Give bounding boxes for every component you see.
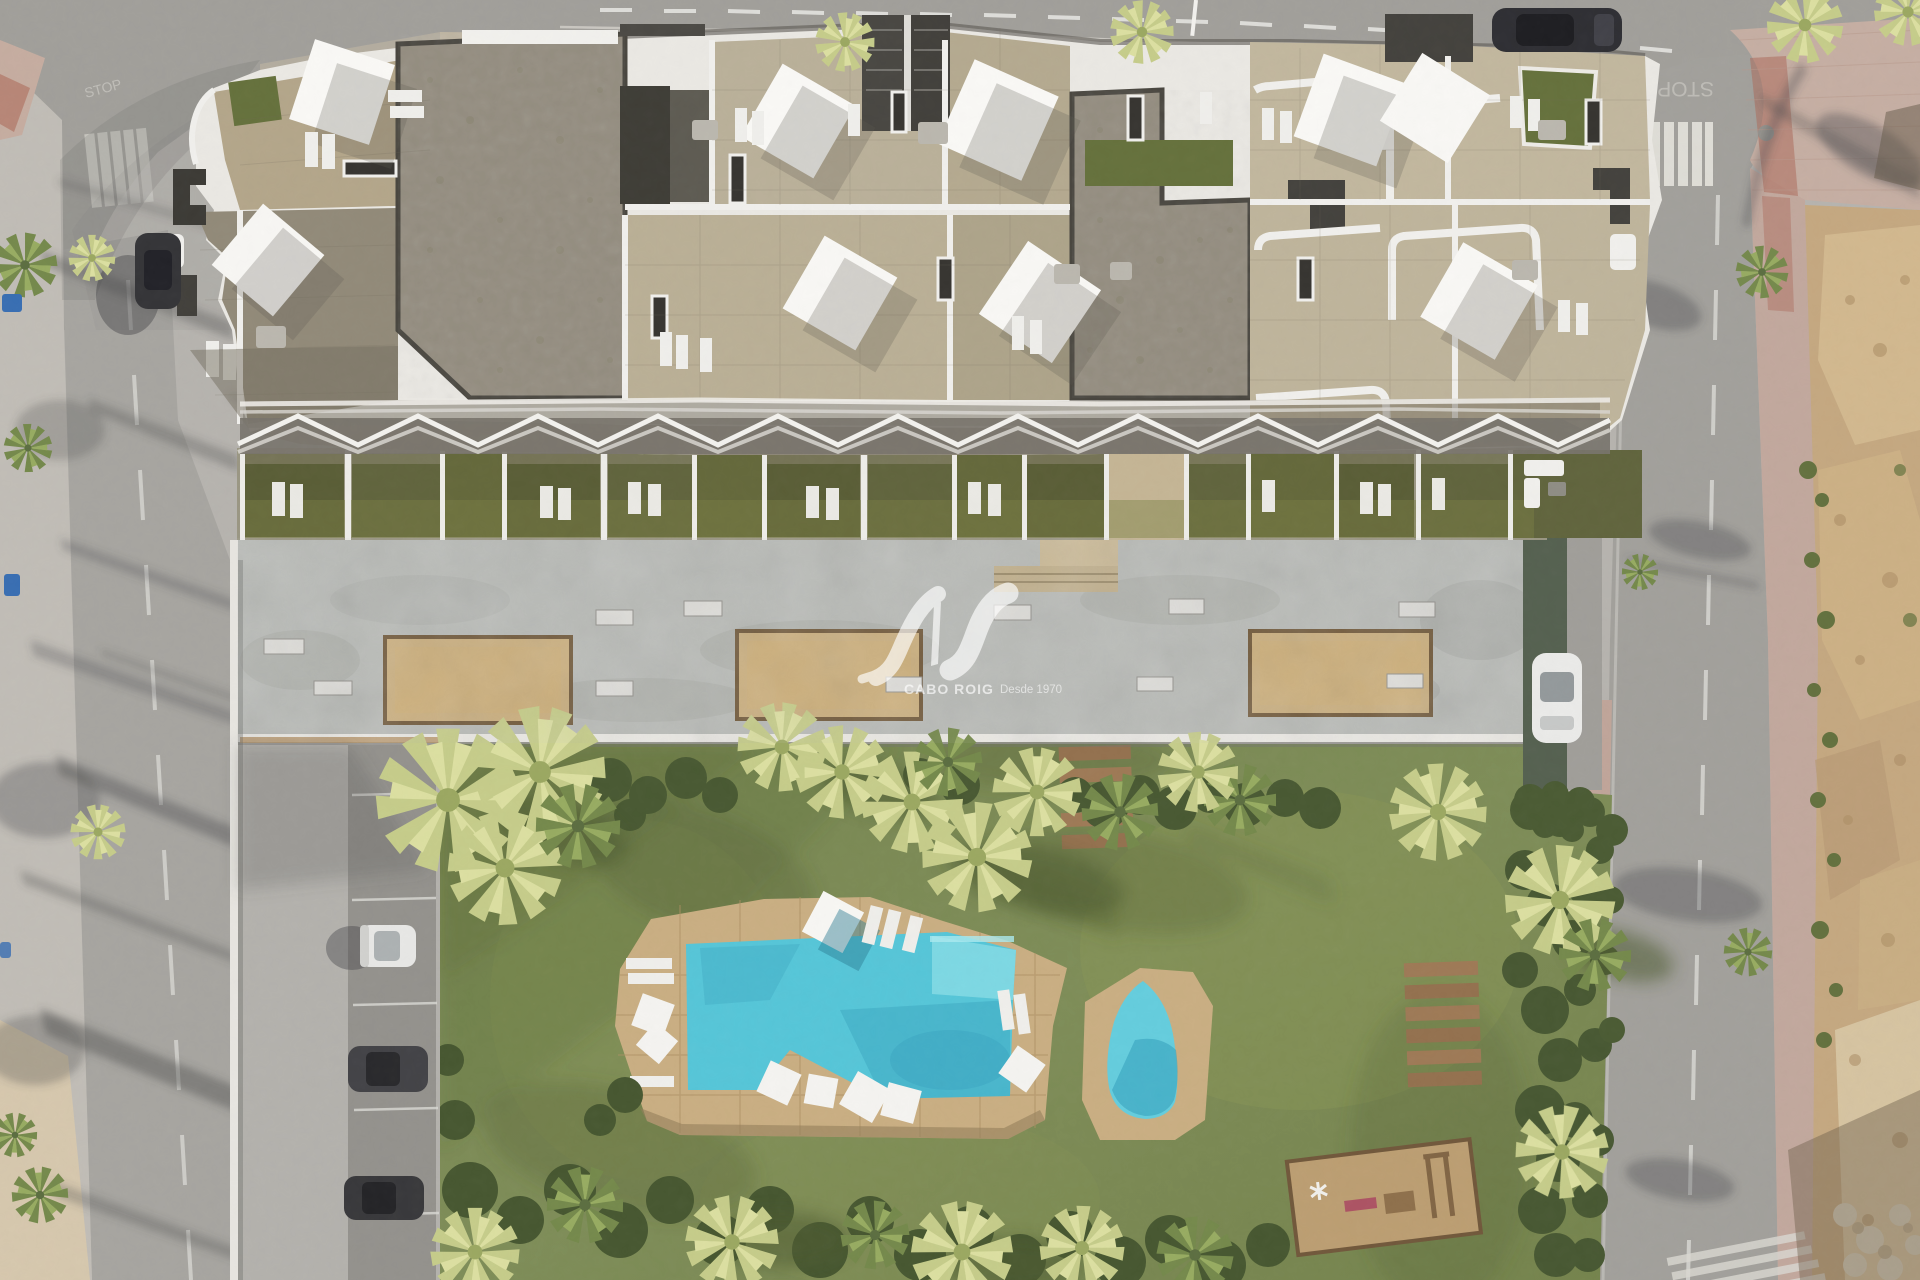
svg-text:Desde 1970: Desde 1970 (1000, 684, 1062, 696)
svg-text:CABO ROIG: CABO ROIG (904, 681, 994, 697)
